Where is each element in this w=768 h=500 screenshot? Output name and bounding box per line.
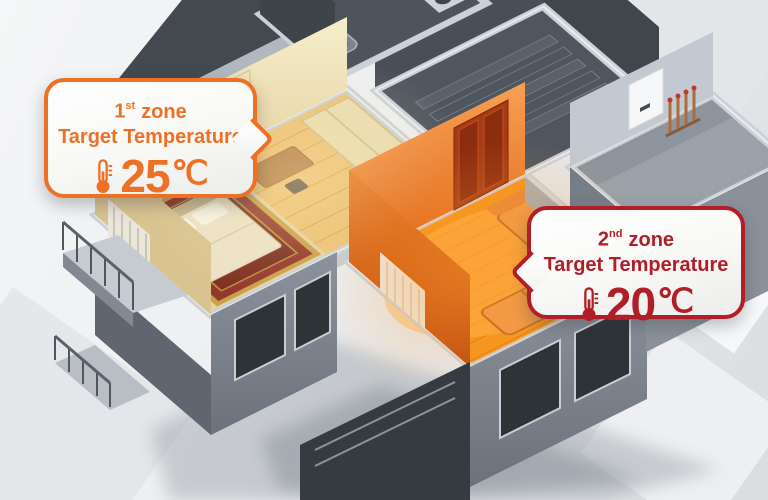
zone2-title: Target Temperature: [531, 252, 741, 278]
thermometer-icon: [92, 157, 114, 195]
zone1-callout: 1stzone Target Temperature 25 ℃: [44, 78, 257, 198]
thermometer-icon: [578, 285, 600, 323]
temperature-value: 20: [606, 281, 655, 327]
temperature-unit: ℃: [172, 153, 209, 192]
zone1-ordinal: 1stzone: [48, 95, 253, 124]
temperature-value: 25: [120, 153, 169, 199]
zone1-title: Target Temperature: [48, 124, 253, 150]
hero-image: 1stzone Target Temperature 25 ℃ 2ndzone …: [0, 0, 768, 500]
temperature-unit: ℃: [657, 281, 694, 320]
zone2-ordinal: 2ndzone: [531, 223, 741, 252]
zone2-temperature: 20 ℃: [531, 281, 741, 327]
zone2-callout: 2ndzone Target Temperature 20 ℃: [527, 206, 745, 319]
zone1-temperature: 25 ℃: [48, 153, 253, 199]
